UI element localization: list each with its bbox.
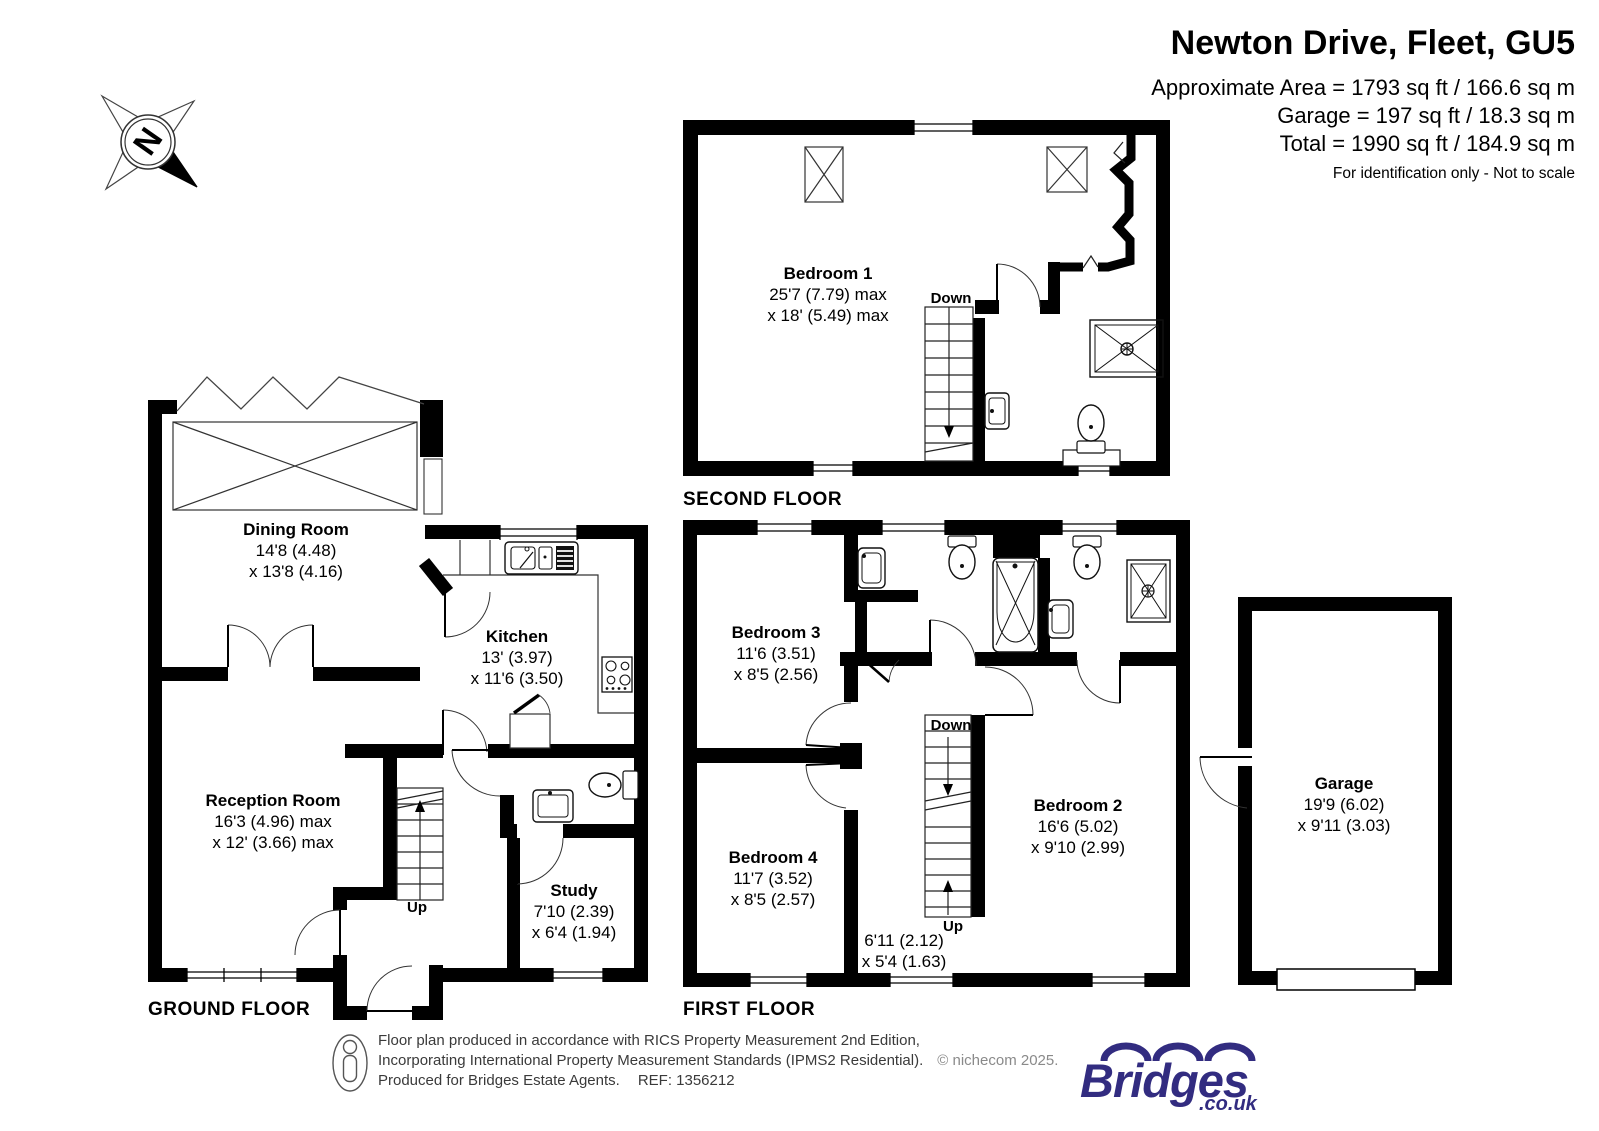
room-label-bedroom-1: Bedroom 1 25'7 (7.79) max x 18' (5.49) m… xyxy=(767,263,888,326)
garage-door-icon xyxy=(1277,969,1415,990)
room-label-landing: 6'11 (2.12) x 5'4 (1.63) xyxy=(862,930,947,972)
room-label-reception-room: Reception Room 16'3 (4.96) max x 12' (3.… xyxy=(205,790,340,853)
toilet-icon xyxy=(1073,536,1101,579)
floorplan-page: Newton Drive, Fleet, GU5 Approximate Are… xyxy=(0,0,1599,1131)
stairs-label-down-second: Down xyxy=(931,290,972,307)
stairs-label-down-first: Down xyxy=(931,717,972,734)
footer-line-1: Floor plan produced in accordance with R… xyxy=(378,1031,1058,1051)
roof-lantern-icon xyxy=(173,422,417,510)
room-label-bedroom-4: Bedroom 4 11'7 (3.52) x 8'5 (2.57) xyxy=(729,847,818,910)
floor-label-ground: GROUND FLOOR xyxy=(148,999,310,1021)
bridges-logo-suffix: .co.uk xyxy=(1199,1093,1257,1116)
sink-icon xyxy=(858,548,885,588)
bath-icon xyxy=(993,558,1038,652)
sink-icon xyxy=(985,393,1009,429)
first-floor-plan xyxy=(683,518,1190,989)
toilet-icon xyxy=(589,771,638,799)
floor-label-first: FIRST FLOOR xyxy=(683,999,815,1021)
room-label-bedroom-2: Bedroom 2 16'6 (5.02) x 9'10 (2.99) xyxy=(1031,795,1125,858)
kitchen-unit xyxy=(510,695,550,748)
person-icon xyxy=(333,1035,367,1091)
toilet-icon xyxy=(948,536,976,579)
stairs-label-up-first: Up xyxy=(943,918,963,935)
second-floor-plan xyxy=(683,118,1170,478)
kitchen-sink-icon xyxy=(505,542,578,574)
footer-ref: REF: 1356212 xyxy=(638,1072,735,1089)
room-label-kitchen: Kitchen 13' (3.97) x 11'6 (3.50) xyxy=(471,626,564,689)
hob-icon xyxy=(602,657,632,692)
disclaimer: For identification only - Not to scale xyxy=(1151,164,1575,184)
approximate-area: Approximate Area = 1793 sq ft / 166.6 sq… xyxy=(1151,74,1575,102)
room-label-bedroom-3: Bedroom 3 11'6 (3.51) x 8'5 (2.56) xyxy=(732,622,821,685)
room-label-study: Study 7'10 (2.39) x 6'4 (1.94) xyxy=(532,880,617,943)
shower-icon xyxy=(1127,560,1170,622)
footer-line-2: Incorporating International Property Mea… xyxy=(378,1052,923,1069)
room-label-dining-room: Dining Room 14'8 (4.48) x 13'8 (4.16) xyxy=(243,519,349,582)
garage-area: Garage = 197 sq ft / 18.3 sq m xyxy=(1151,102,1575,130)
footer-copyright: © nichecom 2025. xyxy=(937,1052,1058,1069)
sink-icon xyxy=(533,790,573,822)
footer-disclaimer: Floor plan produced in accordance with R… xyxy=(378,1031,1058,1091)
footer-line-3: Produced for Bridges Estate Agents. xyxy=(378,1072,620,1089)
floor-label-second: SECOND FLOOR xyxy=(683,489,842,511)
skylight-icon xyxy=(805,147,1087,202)
title-block: Newton Drive, Fleet, GU5 Approximate Are… xyxy=(1151,22,1575,184)
toilet-icon xyxy=(1063,405,1120,466)
stairs-label-up-ground: Up xyxy=(407,899,427,916)
total-area: Total = 1990 sq ft / 184.9 sq m xyxy=(1151,130,1575,158)
page-title: Newton Drive, Fleet, GU5 xyxy=(1151,22,1575,64)
shower-icon xyxy=(1090,320,1163,377)
sink-icon xyxy=(1048,600,1073,638)
room-label-garage: Garage 19'9 (6.02) x 9'11 (3.03) xyxy=(1298,773,1391,836)
